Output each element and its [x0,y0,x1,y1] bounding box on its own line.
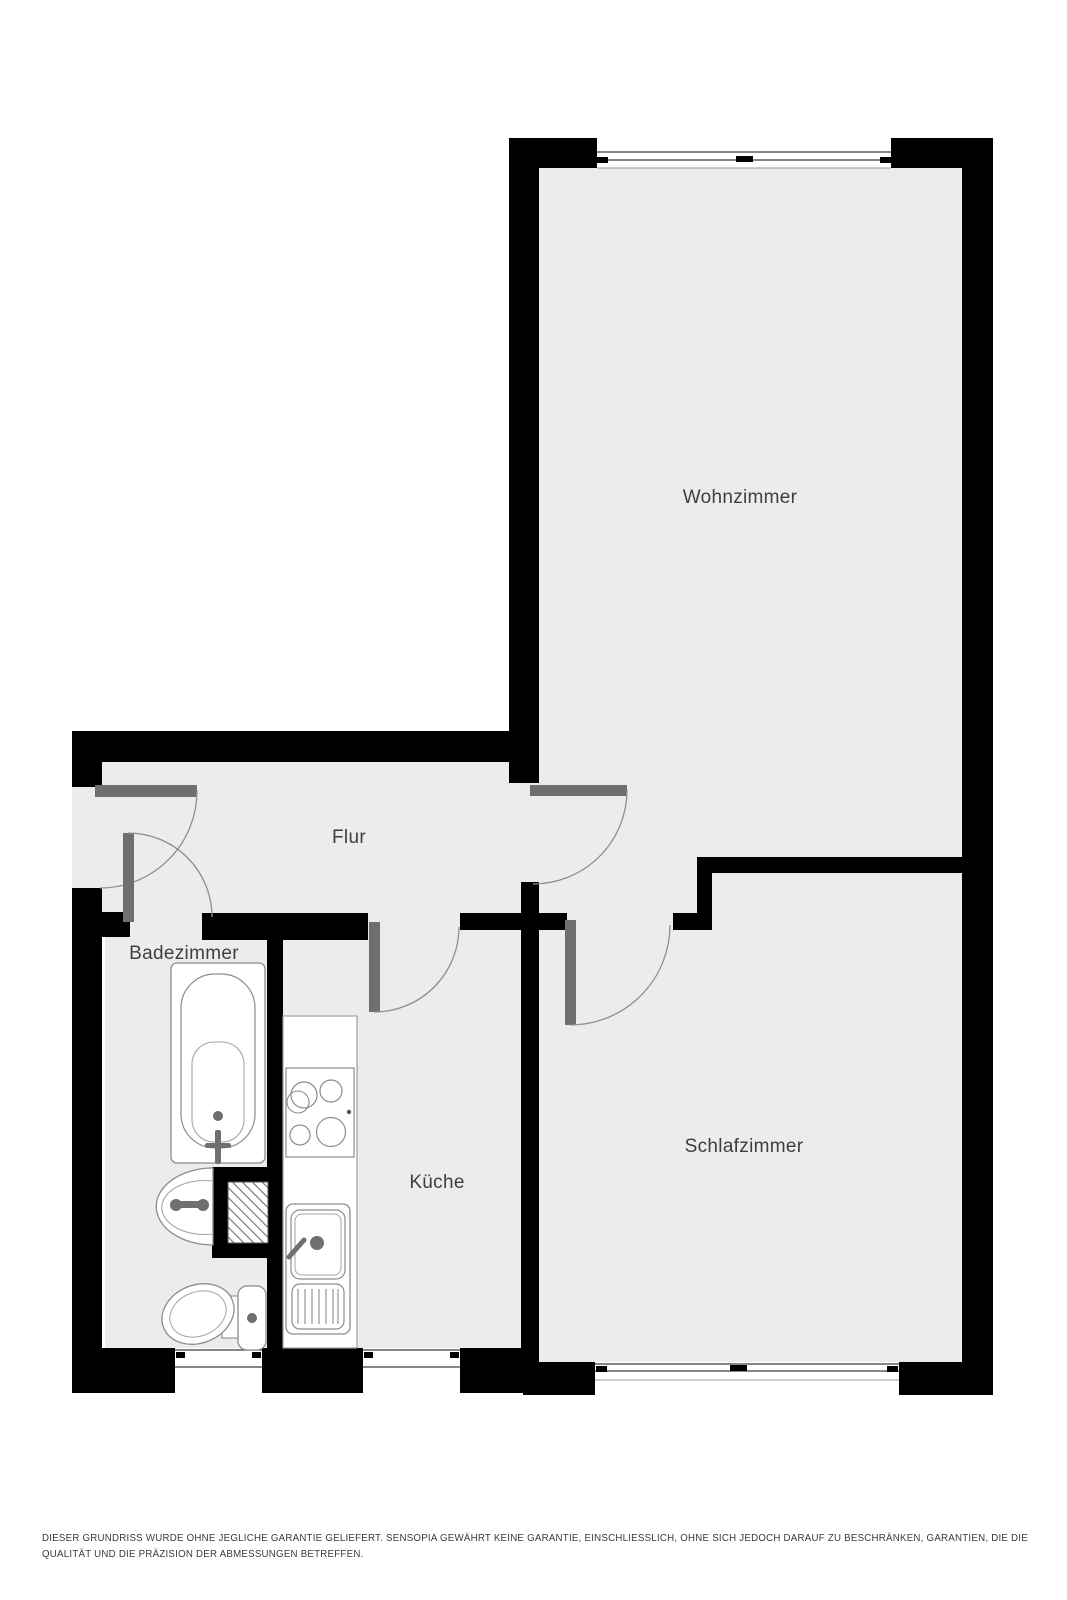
wall-kueche-top [460,913,567,930]
wall-bad-kueche [267,930,283,1348]
disclaimer-line-1: DIESER GRUNDRISS WURDE OHNE JEGLICHE GAR… [42,1531,1052,1547]
disclaimer-text: DIESER GRUNDRISS WURDE OHNE JEGLICHE GAR… [42,1531,1052,1563]
wall-flur-top [72,731,539,762]
wall-kueche-schlaf [521,882,539,1362]
badezimmer-label: Badezimmer [129,943,239,964]
fixtures [153,963,357,1355]
stove-icon [286,1068,354,1157]
shaft-hatch-icon [228,1182,268,1243]
wall-bad-top-b [202,913,368,940]
wohnzimmer-window [597,138,891,168]
schlafzimmer-window [595,1362,899,1392]
badezimmer-window [175,1348,262,1390]
wall-schlaf-bottom-right [899,1362,993,1395]
flur-floor [102,762,539,913]
schlafzimmer-label: Schlafzimmer [685,1136,804,1157]
flur-label: Flur [332,827,366,848]
wall-wohnzimmer-bottom-jog [697,857,712,930]
wohnzimmer-door-leaf [530,785,627,796]
kueche-door-leaf [369,922,380,1012]
schlafzimmer-floor [539,868,962,1362]
wall-right-exterior [962,138,993,1395]
wall-bottom-a [72,1348,175,1393]
floorplan-drawing: Wohnzimmer Flur Badezimmer Küche Schlafz… [0,0,1067,1600]
disclaimer-line-2: QUALITÄT UND DIE PRÄZISION DER ABMESSUNG… [42,1547,1052,1563]
wall-schlaf-bottom-left [523,1362,595,1395]
schlafzimmer-door-leaf [565,920,576,1025]
kueche-window [363,1348,460,1390]
kueche-label: Küche [409,1172,464,1193]
entrance-door-leaf [95,785,197,797]
kitchen-sink-icon [286,1204,350,1334]
wohnzimmer-label: Wohnzimmer [683,487,798,508]
wall-left-upper [72,731,102,787]
bathtub-icon [171,963,265,1164]
wall-wohnzimmer-left [509,138,539,783]
entrance-threshold-floor [72,787,105,888]
wall-bottom-b [262,1348,363,1393]
wall-left-lower [72,888,102,1393]
wall-wohnzimmer-bottom [697,857,962,873]
badezimmer-door-leaf [123,833,134,922]
wohnzimmer-floor [539,168,962,930]
floorplan-page: Wohnzimmer Flur Badezimmer Küche Schlafz… [0,0,1067,1600]
